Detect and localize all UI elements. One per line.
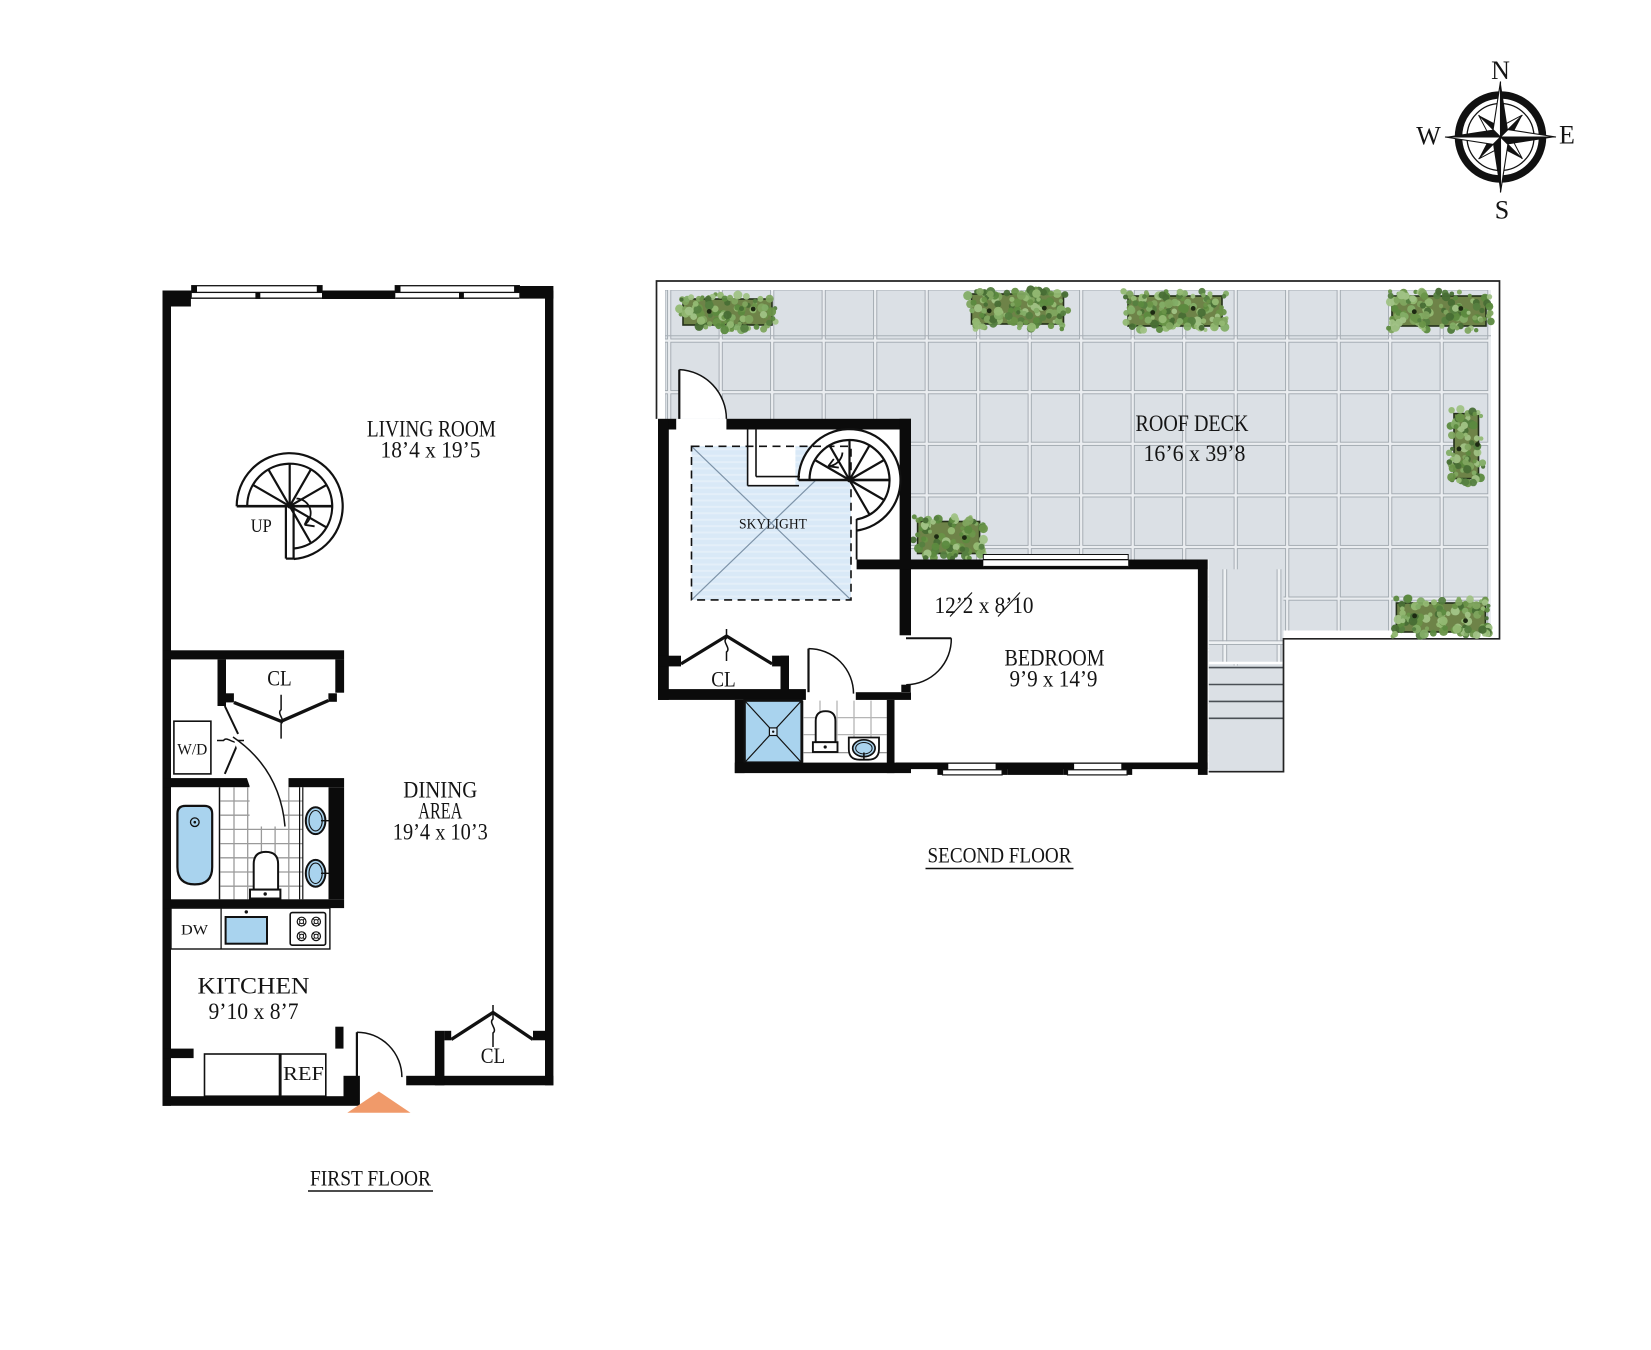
svg-text:UP: UP <box>251 516 272 537</box>
svg-text:W: W <box>1416 122 1441 151</box>
svg-text:SKYLIGHT: SKYLIGHT <box>739 517 807 533</box>
svg-text:16’6 x 39’8: 16’6 x 39’8 <box>1144 441 1246 466</box>
svg-text:ROOF DECK: ROOF DECK <box>1136 411 1249 436</box>
svg-text:12’2 x 8’10: 12’2 x 8’10 <box>935 593 1034 618</box>
svg-text:N: N <box>1491 56 1510 85</box>
svg-text:FIRST FLOOR: FIRST FLOOR <box>310 1166 431 1191</box>
svg-text:9’9 x 14’9: 9’9 x 14’9 <box>1010 667 1098 692</box>
svg-text:CL: CL <box>711 667 736 692</box>
svg-text:DW: DW <box>181 923 209 939</box>
svg-text:W/D: W/D <box>177 742 207 759</box>
svg-text:KITCHEN: KITCHEN <box>198 974 310 999</box>
svg-text:CL: CL <box>481 1043 506 1068</box>
svg-text:18’4 x 19’5: 18’4 x 19’5 <box>381 438 481 463</box>
svg-text:SECOND FLOOR: SECOND FLOOR <box>928 843 1072 868</box>
svg-text:S: S <box>1495 196 1509 225</box>
svg-text:19’4 x 10’3: 19’4 x 10’3 <box>393 820 488 845</box>
svg-text:9’10 x 8’7: 9’10 x 8’7 <box>209 999 299 1024</box>
svg-text:REF: REF <box>283 1063 324 1085</box>
svg-text:CL: CL <box>267 666 292 691</box>
svg-text:E: E <box>1559 121 1575 150</box>
